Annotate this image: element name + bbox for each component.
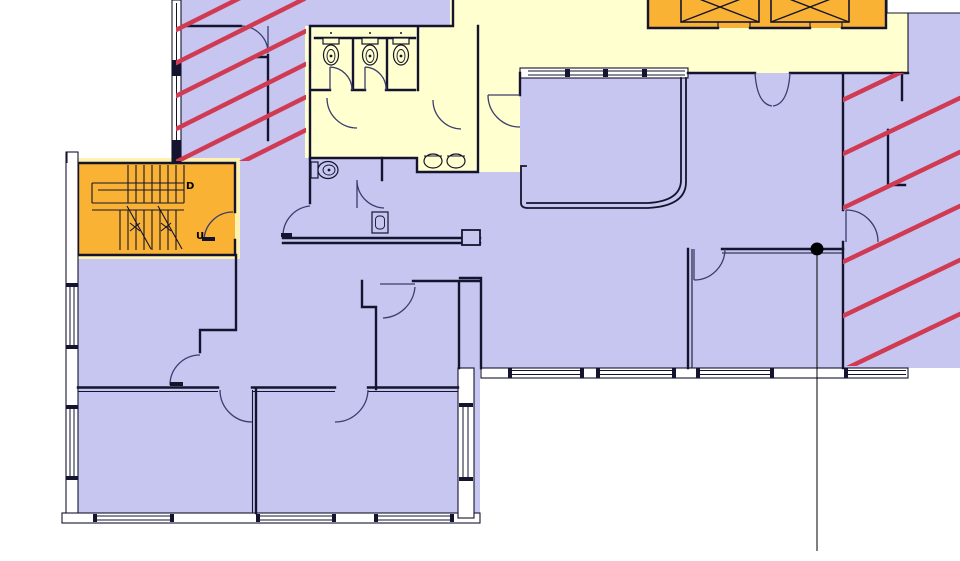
column xyxy=(462,230,480,245)
wall-band-wing-east xyxy=(458,368,474,518)
elevator-core xyxy=(648,0,886,28)
stair-door-leaf xyxy=(202,237,215,241)
floor-plan-canvas: D U xyxy=(0,0,960,561)
floor-plan-drawing: D U xyxy=(0,0,960,561)
wall-band-south xyxy=(481,368,908,378)
stair-down-label: D xyxy=(186,181,194,192)
stairwell-block xyxy=(78,163,235,255)
reference-dot xyxy=(811,243,824,256)
elevator-block xyxy=(648,0,886,28)
room-top-right-sliver xyxy=(906,13,960,73)
urinal-icon xyxy=(372,212,388,233)
wall-band-bottom xyxy=(62,513,480,523)
wall-band-left xyxy=(66,152,78,518)
stair-core: D U xyxy=(73,158,240,259)
corridor-strip xyxy=(460,73,520,172)
accessible-toilet-icon xyxy=(311,162,338,179)
sink-icon xyxy=(424,154,442,168)
room-bottom-wing xyxy=(66,370,480,518)
sink-icon xyxy=(447,154,465,168)
